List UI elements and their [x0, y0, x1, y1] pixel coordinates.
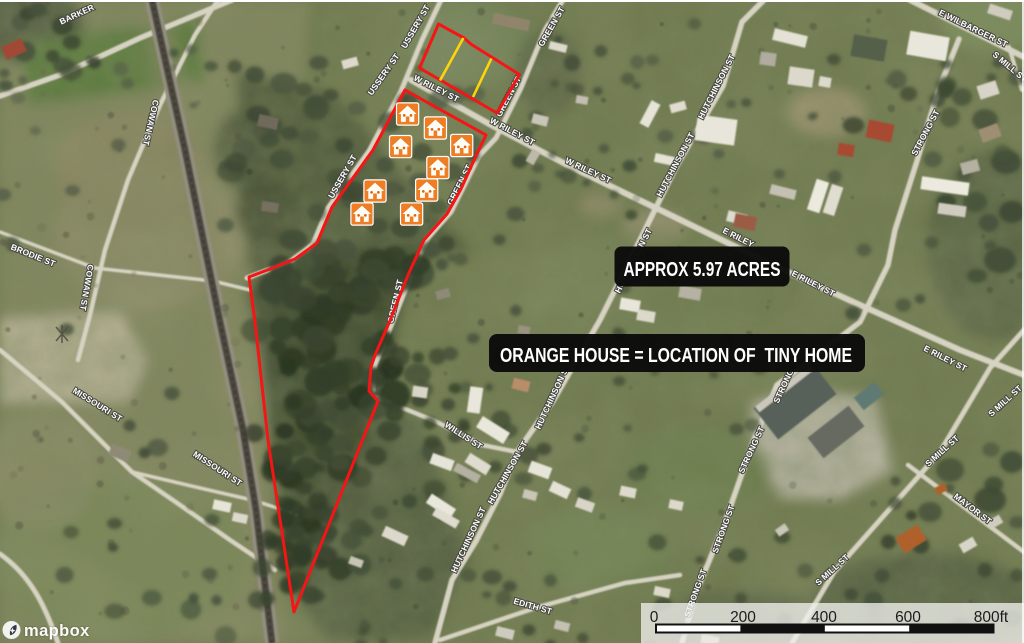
svg-text:mapbox: mapbox: [24, 622, 90, 640]
svg-text:0: 0: [650, 609, 659, 626]
svg-text:800ft: 800ft: [974, 609, 1009, 626]
svg-text:APPROX 5.97 ACRES: APPROX 5.97 ACRES: [624, 258, 781, 281]
svg-text:ORANGE HOUSE = LOCATION OF TI: ORANGE HOUSE = LOCATION OF TINY HOME: [500, 344, 852, 367]
svg-text:400: 400: [811, 609, 837, 626]
svg-text:200: 200: [730, 609, 756, 626]
svg-text:600: 600: [895, 609, 921, 626]
